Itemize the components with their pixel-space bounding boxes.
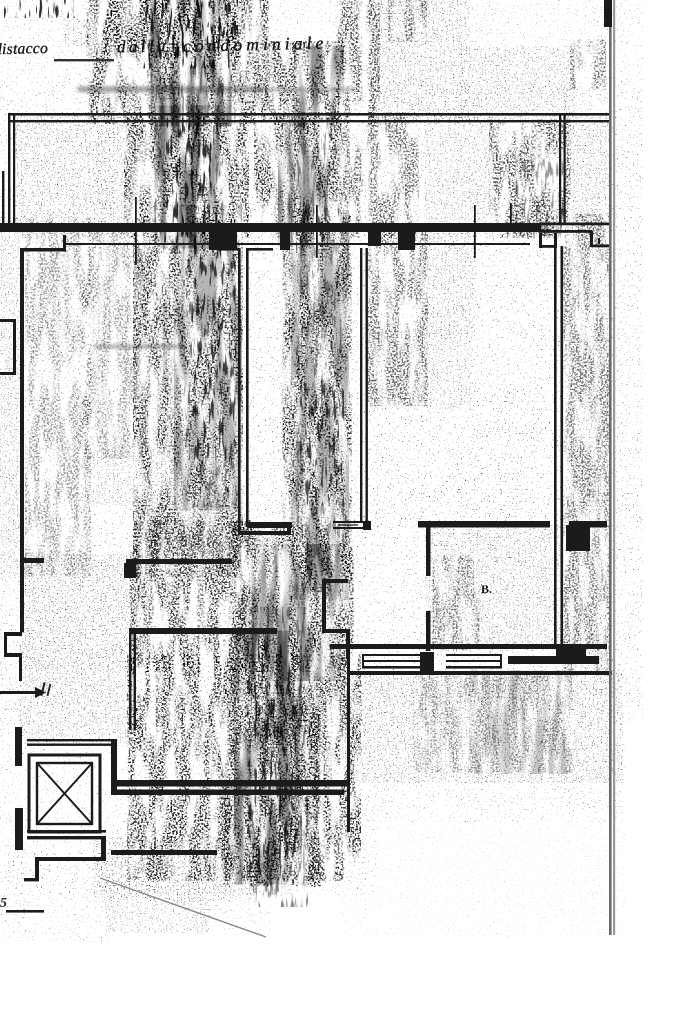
svg-text:condominiale: condominiale xyxy=(183,33,328,56)
svg-text:B.: B. xyxy=(481,582,492,596)
svg-text:distacco: distacco xyxy=(0,40,48,58)
svg-text:5: 5 xyxy=(0,896,7,911)
svg-text:dalla: dalla xyxy=(117,36,169,56)
